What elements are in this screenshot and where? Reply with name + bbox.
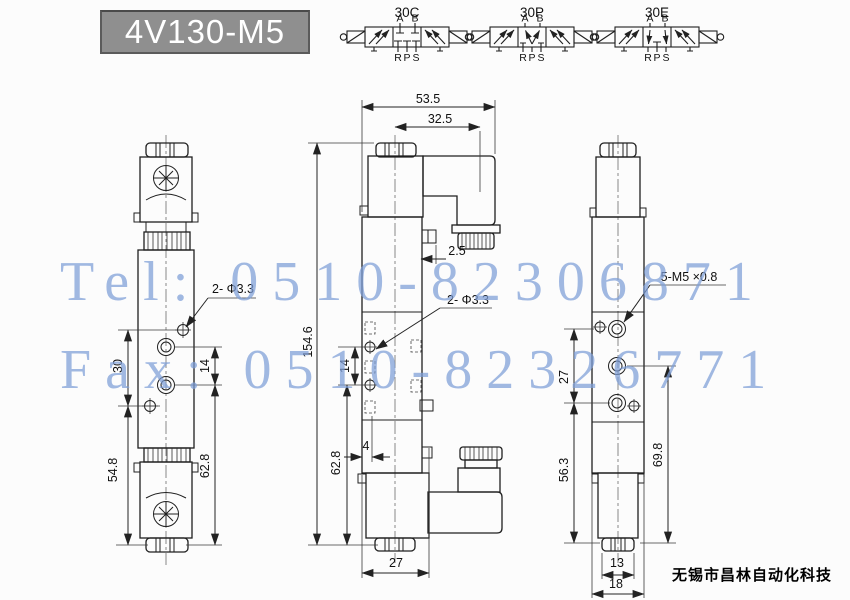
dim-side-154-6: 154.6 — [301, 326, 315, 357]
dim-side-14: 14 — [338, 359, 352, 373]
port-r-label: R — [644, 52, 652, 64]
dim-back-thread-label: 5-M5 ×0.8 — [661, 270, 718, 284]
dim-front-hole-label: 2- Φ3.3 — [212, 282, 254, 296]
dim-side-27: 27 — [389, 556, 403, 570]
valve-symbol-30P: 30P A B R P S — [465, 5, 598, 64]
port-s-label: S — [662, 52, 669, 64]
port-p-label: P — [403, 52, 410, 64]
dim-back-13: 13 — [610, 556, 624, 570]
port-s-label: S — [412, 52, 419, 64]
company-name: 无锡市昌林自动化科技 — [672, 564, 832, 585]
dim-back-18: 18 — [609, 577, 623, 591]
dim-side-hole-label: 2- Φ3.3 — [447, 293, 489, 307]
dim-side-2-5: 2.5 — [448, 244, 465, 258]
dim-side-4: 4 — [363, 439, 370, 453]
port-b-label: B — [536, 13, 543, 25]
valve-symbol-30C: 30C A B R P S — [340, 5, 473, 64]
back-view-drawing — [564, 135, 726, 598]
port-a-label: A — [396, 13, 403, 25]
dim-side-53-5: 53.5 — [416, 92, 440, 106]
drawing-sheet: 30C A B R P S 30P A B R P — [0, 0, 850, 600]
port-a-label: A — [521, 13, 528, 25]
technical-drawing-canvas: 30C A B R P S 30P A B R P — [0, 0, 850, 600]
port-a-label: A — [646, 13, 653, 25]
port-b-label: B — [411, 13, 418, 25]
dim-front-30: 30 — [111, 359, 125, 373]
dim-back-27: 27 — [557, 370, 571, 384]
dim-front-62-8: 62.8 — [198, 454, 212, 478]
dim-front-14: 14 — [198, 359, 212, 373]
port-r-label: R — [394, 52, 402, 64]
dim-back-56-3: 56.3 — [557, 458, 571, 482]
port-p-label: P — [653, 52, 660, 64]
dim-back-69-8: 69.8 — [651, 443, 665, 467]
dim-side-62-8: 62.8 — [329, 451, 343, 475]
model-title-badge: 4V130-M5 — [100, 10, 310, 54]
port-b-label: B — [661, 13, 668, 25]
side-view-drawing — [308, 100, 502, 578]
valve-symbol-30E: 30E A B R P S — [590, 5, 723, 64]
front-view-drawing — [116, 135, 256, 565]
dim-side-32-5: 32.5 — [428, 112, 452, 126]
port-s-label: S — [537, 52, 544, 64]
dim-front-54-8: 54.8 — [106, 458, 120, 482]
port-r-label: R — [519, 52, 527, 64]
model-title: 4V130-M5 — [125, 13, 285, 51]
port-p-label: P — [528, 52, 535, 64]
